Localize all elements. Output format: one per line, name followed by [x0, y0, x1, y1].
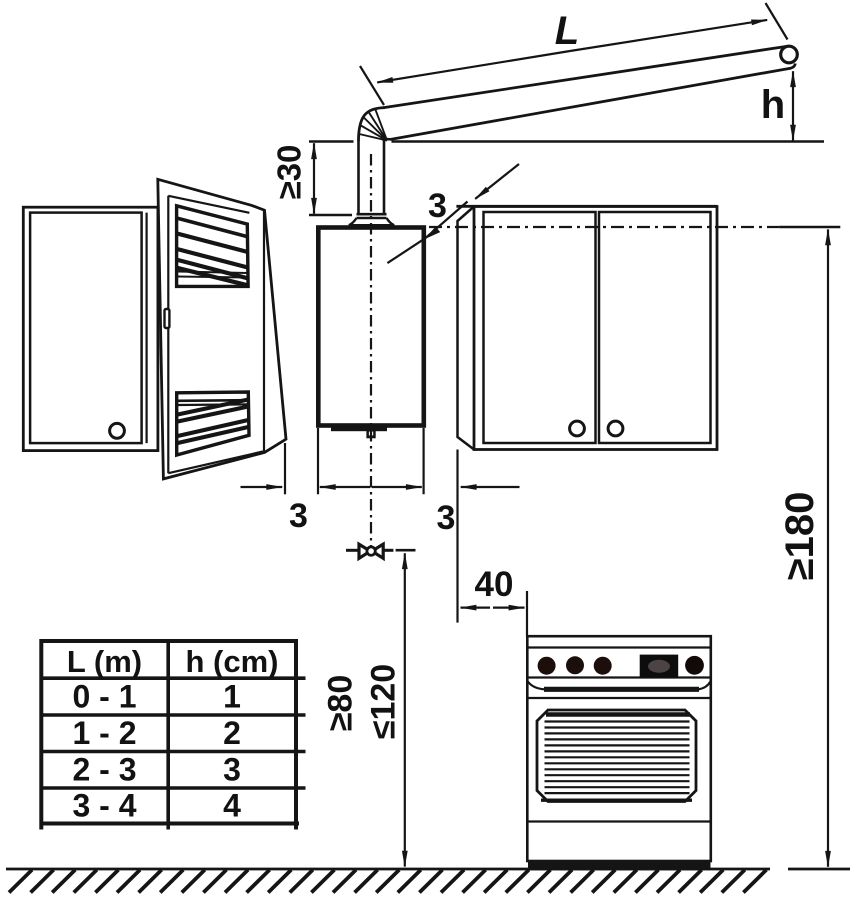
svg-text:3 - 4: 3 - 4 — [72, 788, 136, 824]
svg-text:40: 40 — [475, 565, 514, 604]
svg-text:L: L — [555, 9, 579, 53]
svg-text:2: 2 — [223, 715, 241, 751]
svg-text:≥30: ≥30 — [271, 145, 308, 200]
svg-text:3: 3 — [289, 497, 308, 535]
svg-text:≥80: ≥80 — [322, 675, 360, 731]
svg-text:0 - 1: 0 - 1 — [72, 679, 136, 715]
svg-text:3: 3 — [437, 499, 456, 537]
svg-text:3: 3 — [223, 752, 241, 788]
svg-text:≥180: ≥180 — [778, 492, 822, 581]
svg-text:1: 1 — [223, 679, 241, 715]
svg-text:3: 3 — [428, 187, 447, 225]
svg-text:≤120: ≤120 — [365, 664, 403, 739]
svg-text:h (cm): h (cm) — [186, 644, 279, 679]
svg-text:2 - 3: 2 - 3 — [72, 752, 136, 788]
svg-text:h: h — [761, 83, 785, 127]
svg-text:1 - 2: 1 - 2 — [72, 715, 136, 751]
svg-text:4: 4 — [223, 788, 241, 824]
svg-text:L (m): L (m) — [67, 644, 142, 679]
